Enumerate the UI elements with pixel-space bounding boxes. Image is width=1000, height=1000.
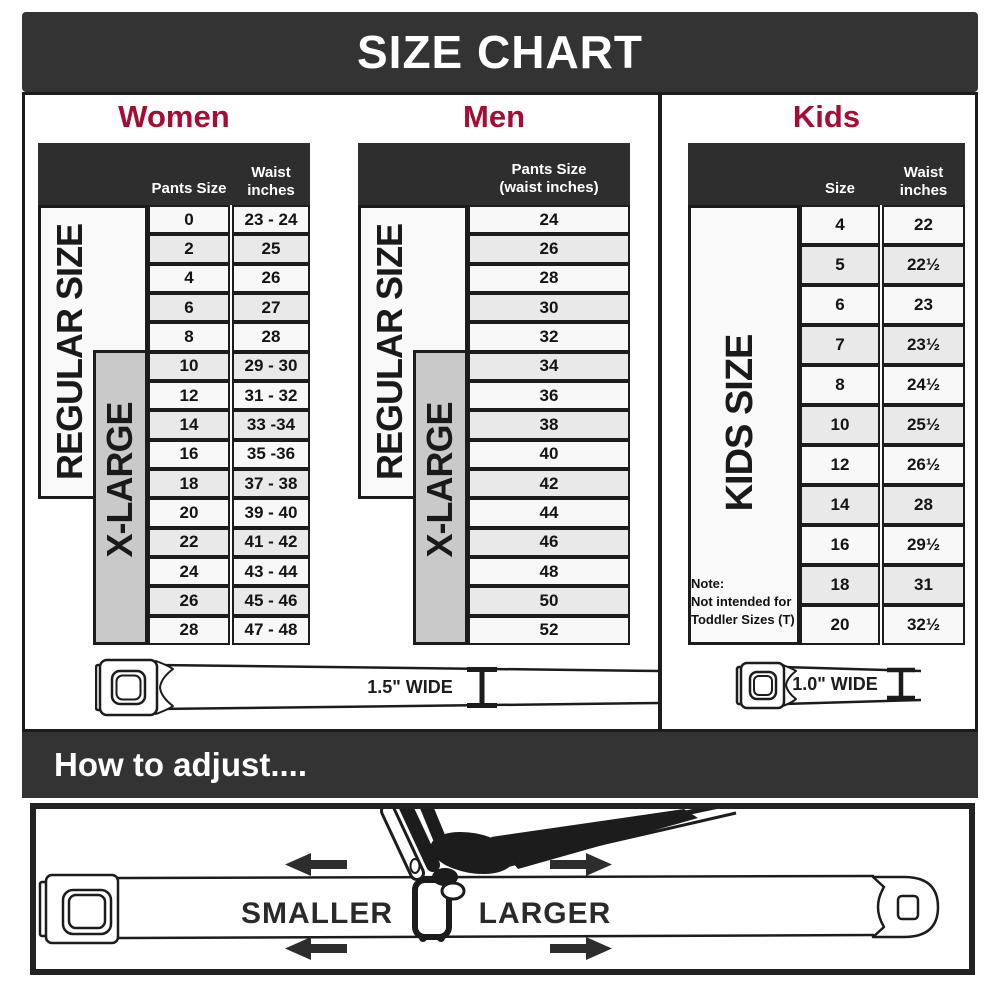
width-indicator-icon (467, 669, 497, 706)
table-row: 22 41 - 42 (38, 528, 310, 557)
waist-cell: 28 (882, 485, 965, 525)
pants-size-cell: 30 (468, 293, 630, 322)
kids-table-header: Size Waist inches (688, 143, 965, 205)
table-row: 50 (358, 586, 630, 615)
table-row: 18 37 - 38 (38, 469, 310, 498)
pants-size-cell: 18 (148, 469, 230, 498)
table-row: 42 (358, 469, 630, 498)
pants-size-cell: 10 (148, 352, 230, 381)
table-row: 5 22½ (688, 245, 965, 285)
kids-heading: Kids (688, 97, 965, 137)
table-row: 14 28 (688, 485, 965, 525)
pants-size-cell: 50 (468, 586, 630, 615)
kid-size-cell: 10 (800, 405, 880, 445)
table-row: 28 (358, 264, 630, 293)
table-row: 26 45 - 46 (38, 586, 310, 615)
kid-size-cell: 7 (800, 325, 880, 365)
waist-cell: 25½ (882, 405, 965, 445)
table-row: 18 31 (688, 565, 965, 605)
waist-cell: 22 (882, 205, 965, 245)
size-chart-page: SIZE CHART Women Men Kids Pants Size Wai… (0, 0, 1000, 1000)
waist-cell: 29½ (882, 525, 965, 565)
table-row: 10 25½ (688, 405, 965, 445)
pants-size-cell: 0 (148, 205, 230, 234)
table-row: 12 26½ (688, 445, 965, 485)
waist-cell: 41 - 42 (232, 528, 310, 557)
table-row: 44 (358, 498, 630, 527)
waist-cell: 39 - 40 (232, 498, 310, 527)
kid-size-cell: 8 (800, 365, 880, 405)
table-row: 38 (358, 410, 630, 439)
table-row: 7 23½ (688, 325, 965, 365)
belt-strap-bottom-line (157, 703, 661, 709)
kid-size-cell: 4 (800, 205, 880, 245)
pants-size-cell: 38 (468, 410, 630, 439)
pants-size-cell: 4 (148, 264, 230, 293)
pants-size-cell: 2 (148, 234, 230, 263)
waist-cell: 26½ (882, 445, 965, 485)
pants-size-cell: 26 (468, 234, 630, 263)
table-row: 16 35 -36 (38, 440, 310, 469)
table-row: 24 (358, 205, 630, 234)
women-col-pants-size: Pants Size (148, 180, 230, 198)
pants-size-cell: 52 (468, 616, 630, 645)
table-row: 0 23 - 24 (38, 205, 310, 234)
waist-cell: 23 - 24 (232, 205, 310, 234)
waist-cell: 25 (232, 234, 310, 263)
pants-size-cell: 42 (468, 469, 630, 498)
pants-size-cell: 44 (468, 498, 630, 527)
pants-size-cell: 34 (468, 352, 630, 381)
kid-size-cell: 20 (800, 605, 880, 645)
pants-size-cell: 14 (148, 410, 230, 439)
adjust-diagram-panel: SMALLER LARGER (30, 803, 975, 975)
section-divider (658, 95, 662, 729)
pants-size-cell: 22 (148, 528, 230, 557)
pants-size-cell: 36 (468, 381, 630, 410)
belt-tongue-icon (873, 877, 938, 937)
table-row: 52 (358, 616, 630, 645)
waist-cell: 47 - 48 (232, 616, 310, 645)
how-to-adjust-banner: How to adjust.... (22, 732, 978, 798)
men-col-pants-size: Pants Size (waist inches) (468, 161, 630, 197)
table-row: 40 (358, 440, 630, 469)
waist-cell: 23 (882, 285, 965, 325)
arrow-left-top-icon (285, 853, 347, 876)
table-row: 46 (358, 528, 630, 557)
main-panel: Women Men Kids Pants Size Waist inches R… (22, 92, 978, 732)
waist-cell: 22½ (882, 245, 965, 285)
table-row: 6 27 (38, 293, 310, 322)
pants-size-cell: 26 (148, 586, 230, 615)
kids-size-table: Size Waist inches KIDS SIZE Note: Not in… (688, 143, 965, 645)
table-row: 24 43 - 44 (38, 557, 310, 586)
adult-belt-width-label: 1.5" WIDE (367, 677, 453, 697)
table-row: 4 26 (38, 264, 310, 293)
kid-size-cell: 18 (800, 565, 880, 605)
pants-size-cell: 28 (148, 616, 230, 645)
larger-label: LARGER (479, 897, 612, 930)
pants-size-cell: 24 (468, 205, 630, 234)
table-row: 20 32½ (688, 605, 965, 645)
waist-cell: 31 (882, 565, 965, 605)
kid-size-cell: 12 (800, 445, 880, 485)
men-size-table: Pants Size (waist inches) REGULAR SIZE X… (358, 143, 630, 645)
smaller-label: SMALLER (241, 897, 393, 930)
waist-cell: 28 (232, 322, 310, 351)
kids-col-size: Size (800, 180, 880, 198)
table-row: 20 39 - 40 (38, 498, 310, 527)
women-heading: Women (38, 97, 310, 137)
pants-size-cell: 16 (148, 440, 230, 469)
women-table-header: Pants Size Waist inches (38, 143, 310, 205)
arrow-left-bottom-icon (285, 937, 347, 960)
belt-strap-top-line (157, 665, 661, 671)
how-to-adjust-title: How to adjust.... (54, 746, 307, 784)
pants-size-cell: 32 (468, 322, 630, 351)
pants-size-cell: 28 (468, 264, 630, 293)
table-row: 36 (358, 381, 630, 410)
width-indicator-icon (887, 670, 915, 698)
kid-size-cell: 6 (800, 285, 880, 325)
belt-strap-bottom-line (783, 700, 921, 704)
waist-cell: 23½ (882, 325, 965, 365)
pants-size-cell: 48 (468, 557, 630, 586)
waist-cell: 43 - 44 (232, 557, 310, 586)
kid-size-cell: 14 (800, 485, 880, 525)
table-row: 48 (358, 557, 630, 586)
kids-belt-width-label: 1.0" WIDE (792, 674, 878, 694)
waist-cell: 24½ (882, 365, 965, 405)
waist-cell: 32½ (882, 605, 965, 645)
waist-cell: 26 (232, 264, 310, 293)
kids-table-body: 4 22 5 22½ 6 23 7 23½ (688, 205, 965, 645)
seatbelt-buckle-icon (737, 663, 796, 708)
table-row: 6 23 (688, 285, 965, 325)
men-heading: Men (358, 97, 630, 137)
waist-cell: 27 (232, 293, 310, 322)
adult-belt-graphic: 1.5" WIDE (95, 648, 663, 723)
men-table-header: Pants Size (waist inches) (358, 143, 630, 205)
title-banner: SIZE CHART (22, 12, 978, 92)
waist-cell: 31 - 32 (232, 381, 310, 410)
waist-cell: 37 - 38 (232, 469, 310, 498)
kid-size-cell: 16 (800, 525, 880, 565)
table-row: 8 28 (38, 322, 310, 351)
adjust-diagram: SMALLER LARGER (36, 809, 969, 969)
table-row: 4 22 (688, 205, 965, 245)
table-row: 34 (358, 352, 630, 381)
pants-size-cell: 6 (148, 293, 230, 322)
arrow-right-bottom-icon (550, 937, 612, 960)
table-row: 2 25 (38, 234, 310, 263)
kids-belt-graphic: 1.0" WIDE (735, 655, 927, 715)
waist-cell: 33 -34 (232, 410, 310, 439)
kid-size-cell: 5 (800, 245, 880, 285)
pants-size-cell: 24 (148, 557, 230, 586)
waist-cell: 29 - 30 (232, 352, 310, 381)
table-row: 26 (358, 234, 630, 263)
table-row: 12 31 - 32 (38, 381, 310, 410)
pants-size-cell: 20 (148, 498, 230, 527)
pants-size-cell: 46 (468, 528, 630, 557)
table-row: 30 (358, 293, 630, 322)
seatbelt-buckle-icon (96, 660, 173, 715)
waist-cell: 45 - 46 (232, 586, 310, 615)
table-row: 32 (358, 322, 630, 351)
seatbelt-buckle-icon (40, 875, 118, 943)
kids-col-waist: Waist inches (882, 164, 965, 200)
table-row: 28 47 - 48 (38, 616, 310, 645)
table-row: 10 29 - 30 (38, 352, 310, 381)
table-row: 14 33 -34 (38, 410, 310, 439)
women-size-table: Pants Size Waist inches REGULAR SIZE X-L… (38, 143, 310, 645)
pants-size-cell: 8 (148, 322, 230, 351)
table-row: 8 24½ (688, 365, 965, 405)
page-title: SIZE CHART (357, 25, 643, 79)
women-col-waist: Waist inches (232, 164, 310, 200)
women-table-body: 0 23 - 24 2 25 4 26 6 2 (38, 205, 310, 645)
waist-cell: 35 -36 (232, 440, 310, 469)
table-row: 16 29½ (688, 525, 965, 565)
pants-size-cell: 40 (468, 440, 630, 469)
men-table-body: 24 26 28 30 32 (358, 205, 630, 645)
pants-size-cell: 12 (148, 381, 230, 410)
